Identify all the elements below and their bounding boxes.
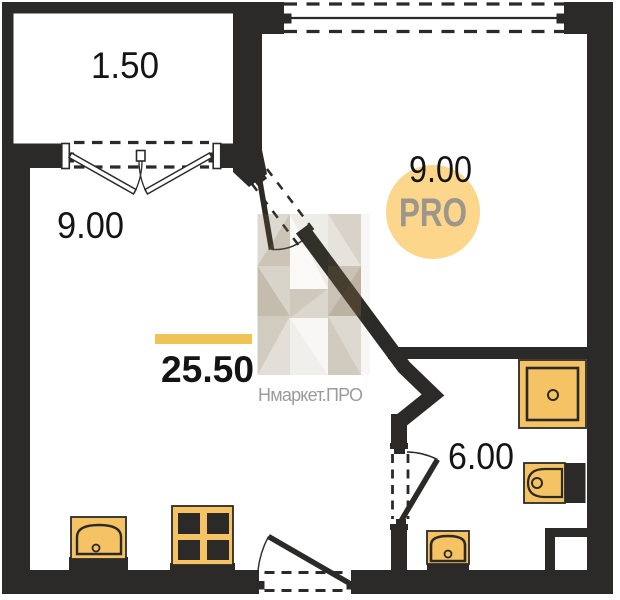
svg-text:25.50: 25.50 bbox=[161, 349, 254, 390]
svg-text:6.00: 6.00 bbox=[448, 436, 514, 477]
svg-text:Нмаркет.ПРО: Нмаркет.ПРО bbox=[258, 385, 363, 405]
svg-text:9.00: 9.00 bbox=[57, 205, 124, 246]
svg-text:1.50: 1.50 bbox=[91, 45, 159, 86]
svg-text:9.00: 9.00 bbox=[409, 149, 472, 190]
svg-text:PRO: PRO bbox=[399, 191, 467, 235]
